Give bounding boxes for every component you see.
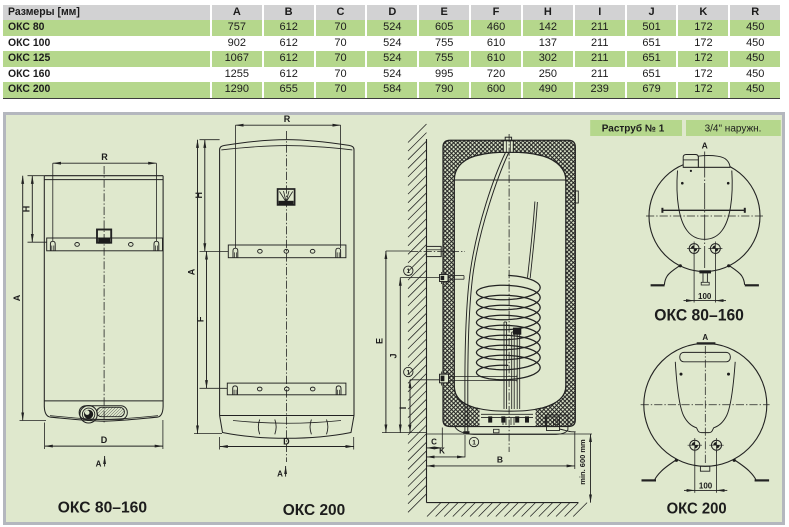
svg-text:ОКС 80–160: ОКС 80–160 [654,305,744,324]
svg-text:А: А [277,469,283,478]
svg-text:А: А [702,333,708,342]
svg-text:1: 1 [406,369,410,376]
svg-text:A: A [187,268,197,275]
svg-text:C: C [431,438,437,447]
svg-text:D: D [101,435,108,445]
svg-text:K: K [439,447,445,456]
svg-text:R: R [101,152,108,162]
svg-text:ОКС 80–160: ОКС 80–160 [58,500,147,517]
svg-text:B: B [497,454,503,464]
svg-text:1: 1 [406,268,410,275]
svg-text:A: A [12,294,22,301]
svg-text:ОКС 200: ОКС 200 [283,502,346,519]
svg-text:А: А [96,459,102,468]
svg-text:1: 1 [472,439,476,446]
svg-text:F: F [195,316,205,322]
svg-text:H: H [194,192,204,199]
svg-text:D: D [283,437,290,447]
svg-text:А: А [702,141,708,151]
svg-text:I: I [398,407,408,410]
svg-text:J: J [389,353,399,358]
svg-text:R: R [284,114,291,124]
svg-text:ОКС 200: ОКС 200 [667,500,727,517]
svg-text:100: 100 [699,482,713,491]
svg-text:min. 600 mm: min. 600 mm [578,439,587,485]
svg-text:3/4" наружн.: 3/4" наружн. [705,124,762,135]
svg-text:100: 100 [698,292,712,301]
svg-text:Раструб № 1: Раструб № 1 [602,123,665,135]
svg-text:E: E [374,338,384,344]
